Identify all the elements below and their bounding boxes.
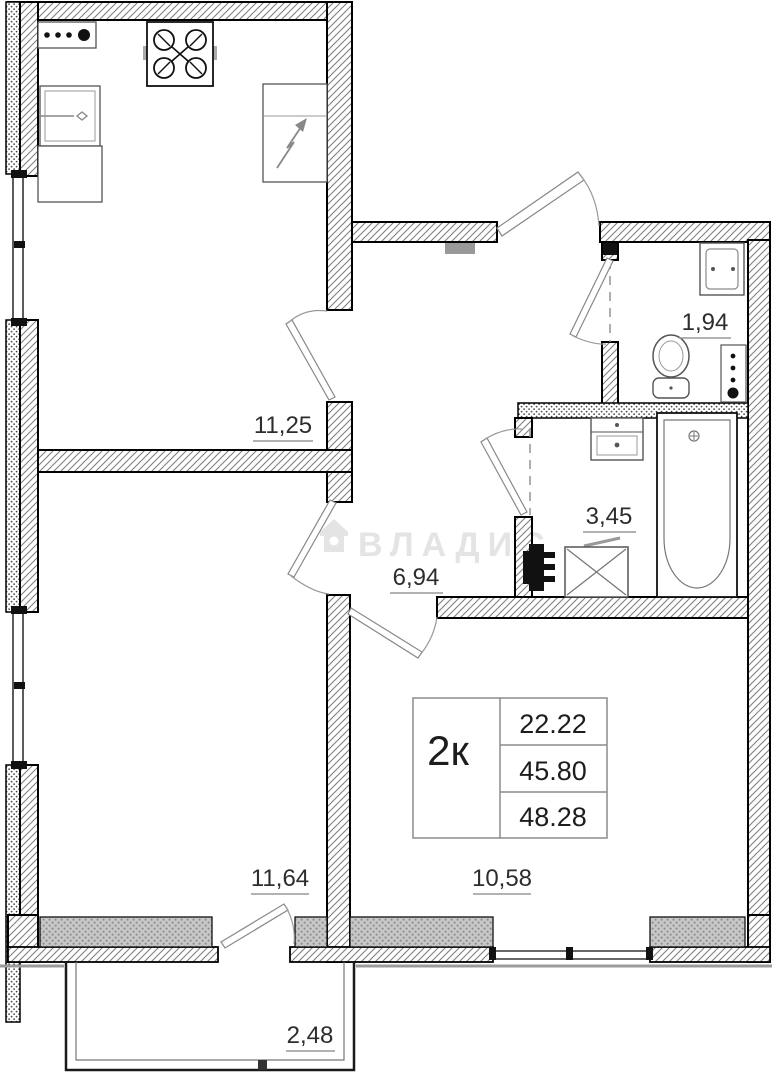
- wall-entrance-right: [600, 222, 770, 242]
- wall-kitchen-bedroom-stub: [327, 472, 352, 502]
- wall-left-inner-3: [20, 765, 38, 917]
- wall-left-outer-1: [6, 2, 20, 174]
- wall-kitchen-door-post: [327, 402, 352, 452]
- wall-right: [748, 240, 770, 917]
- wall-entrance-left: [352, 222, 497, 242]
- wall-left-inner-2: [20, 320, 38, 612]
- wall-wc-left: [602, 342, 618, 405]
- wall-top: [8, 2, 352, 20]
- watermark-house-window: [330, 537, 339, 546]
- wall-left-inner-1: [20, 2, 38, 176]
- room-hall: [354, 244, 514, 594]
- wall-bottom-strip-3: [650, 947, 770, 962]
- room-balcony: [68, 964, 352, 1068]
- sill-living-right: [650, 917, 745, 947]
- wall-left-outer-2: [6, 320, 20, 612]
- room-wc: [620, 244, 746, 402]
- room-bathroom: [534, 420, 746, 595]
- wall-bathroom-living: [437, 597, 748, 618]
- floor-plan: ВЛАДИС: [0, 0, 772, 1080]
- wall-kitchen-right: [327, 2, 352, 310]
- sill-bedroom-right: [295, 917, 327, 947]
- room-bedroom: [40, 474, 325, 914]
- sill-bedroom: [40, 917, 212, 947]
- room-living: [352, 620, 746, 915]
- wall-left-outer-3: [6, 765, 20, 1022]
- wall-bottom-strip-2: [290, 947, 493, 962]
- sill-living-left: [350, 917, 493, 947]
- wall-bottom-strip-1: [8, 947, 218, 962]
- wall-bedroom-living: [327, 595, 350, 962]
- room-kitchen: [40, 22, 325, 448]
- wall-kitchen-bedroom: [38, 450, 352, 472]
